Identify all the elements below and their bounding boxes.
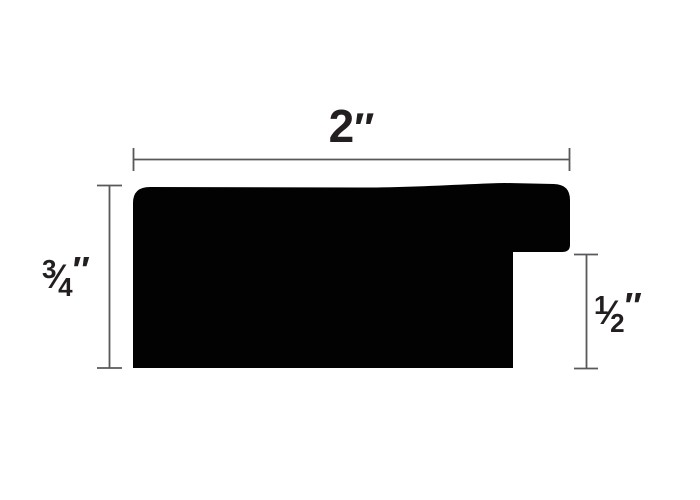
rabbet-dimension-denominator: 2	[610, 308, 624, 338]
rabbet-dimension-label: 1⁄2″	[594, 288, 641, 336]
height-dimension-denominator: 4	[58, 272, 72, 302]
width-dimension-value: 2	[329, 100, 355, 152]
moulding-profile-shape	[133, 183, 570, 368]
width-dimension-unit: ″	[354, 104, 373, 151]
height-dimension-line	[97, 186, 122, 369]
height-dimension-unit: ″	[73, 249, 89, 290]
height-dimension-label: 3⁄4″	[42, 252, 89, 300]
width-dimension-label: 2″	[281, 103, 421, 149]
rabbet-dimension-unit: ″	[625, 285, 641, 326]
diagram-canvas	[0, 0, 700, 500]
moulding-dimension-diagram: 2″ 3⁄4″ 1⁄2″	[0, 0, 700, 500]
